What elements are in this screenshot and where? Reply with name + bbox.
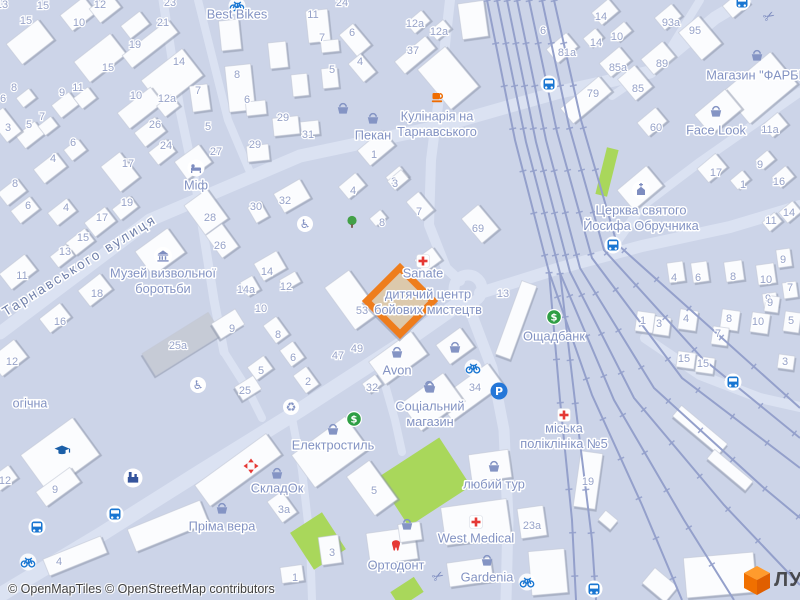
house-number: 21 [157,17,169,29]
house-number: 6 [540,25,546,37]
house-number: 14 [595,11,607,23]
bicycle-icon[interactable] [20,554,37,571]
house-number: 95 [689,25,701,37]
museum-icon[interactable] [154,247,172,265]
poi-label-skladok: СкладОк [251,480,304,495]
house-number: 6 [0,93,6,105]
dollar-icon[interactable]: $ [546,309,562,325]
house-number: 9 [229,323,235,335]
house-number: 1 [292,572,298,584]
house-number: 85a [609,62,628,74]
house-number: 34 [469,382,481,394]
house-number: 10 [255,303,267,315]
poi-label-museum: боротьби [135,281,190,296]
house-number: 12 [94,0,106,11]
house-number: 11 [307,9,318,21]
church-icon[interactable] [632,181,650,199]
poi-label-ortodont: Ортодонт [368,557,425,572]
house-number: 32 [366,382,378,394]
house-number: 4 [683,313,689,325]
attribution-bar: © OpenMapTiles © OpenStreetMap contribut… [8,582,275,596]
house-number: 11 [16,270,27,282]
poi-label-church: Церква святого [596,202,687,217]
house-number: 29 [249,139,261,151]
house-number: 85 [632,83,644,95]
house-number: 8 [234,69,240,81]
house-number: 5 [26,119,32,131]
poi-label-mif: Міф [184,177,208,192]
poi-label-sotsialnyi-mahazyn: магазин [406,414,453,429]
house-number: 5 [371,485,377,497]
house-number: 25a [169,340,188,352]
building [291,73,309,97]
house-number: 18 [91,288,103,300]
bus-icon[interactable] [605,237,622,254]
poi-label-sanate: Sanate [403,265,444,280]
house-number: 10 [130,90,142,102]
dollar-icon[interactable]: $ [346,411,362,427]
poi-label-avon: Avon [383,362,412,377]
house-number: 16 [773,176,785,188]
house-number: 13 [497,288,509,300]
poi-label-mahazyn-farby: Магазин "ФАРБИ [706,67,800,82]
factory-icon[interactable] [124,469,143,488]
house-number: 9 [780,254,786,266]
house-number: 9 [767,297,773,309]
poi-label-sotsialnyi-mahazyn: Соціальний [395,398,464,413]
poi-label-best-bikes: Best Bikes [207,6,267,21]
house-number: 9 [59,87,65,99]
map-canvas[interactable]: P♻♿♿$✂✂Best BikesПеканКулінарія наТарнав… [0,0,800,600]
house-number: 10 [752,316,764,328]
map-svg: P♻♿♿$✂✂Best BikesПеканКулінарія наТарнав… [0,0,800,600]
poi-label-west-medical: West Medical [438,530,515,545]
house-number: 13 [59,246,71,258]
house-number: 19 [582,476,594,488]
svg-text:♻: ♻ [286,400,297,414]
house-number: 14 [173,56,185,68]
house-number: 8 [379,217,385,229]
house-number: 19 [129,39,141,51]
house-number: 15 [37,0,49,12]
house-number: 7 [715,328,721,340]
building [268,41,289,69]
house-number: 93a [662,17,681,29]
building [458,0,489,39]
house-number: 8 [730,271,736,283]
bicycle-icon[interactable] [465,360,482,377]
svg-text:P: P [495,385,503,398]
svg-text:♿: ♿ [300,217,311,231]
house-number: 8 [12,178,18,190]
house-number: 15 [102,62,114,74]
house-number: 12a [430,26,449,38]
house-number: 27 [210,146,222,158]
house-number: 23a [523,520,542,532]
house-number: 25 [239,385,251,397]
poi-label-dytyachyi-tsentr: дитячий центр [385,286,471,301]
coffee-icon[interactable] [432,93,443,102]
house-number: 12a [406,18,425,30]
house-number: 3 [329,547,335,559]
parking-icon[interactable]: P [491,383,508,400]
house-number: 28 [204,212,216,224]
poi-label-church: Йосифа Обручника [583,218,699,233]
bus-icon[interactable] [29,519,46,536]
openmaptiles-link[interactable]: © OpenMapTiles [8,582,102,596]
house-number: 14 [590,37,602,49]
house-number: 15 [678,353,690,365]
house-number: 26 [149,119,161,131]
house-number: 23 [164,0,176,9]
building [218,19,241,51]
house-number: 3 [5,122,11,134]
house-number: 4 [63,202,69,214]
house-number: 7 [416,206,422,218]
house-number: 13 [0,0,8,11]
house-number: 7 [195,85,201,97]
poi-label-museum: Музей визвольної [110,265,216,280]
house-number: 16 [54,316,66,328]
house-number: 6 [25,200,31,212]
poi-label-elektrostyl: Електростиль [292,437,375,452]
house-number: 5 [205,121,211,133]
house-number: 10 [73,17,85,29]
poi-label-oschadbank: Ощадбанк [523,328,585,343]
bus-icon[interactable] [725,374,742,391]
house-number: 31 [302,129,314,141]
house-number: 32 [279,195,291,207]
house-number: 9 [52,484,58,496]
svg-text:$: $ [551,313,558,324]
poi-label-dytyachyi-tsentr: бойових мистецтв [374,302,482,317]
house-number: 11 [765,215,776,227]
house-number: 79 [587,88,599,100]
house-number: 4 [357,56,363,68]
house-number: 4 [50,153,56,165]
poi-label-gardenia: Gardenia [461,569,515,584]
house-number: 53 [356,305,368,317]
svg-text:♿: ♿ [193,378,204,392]
house-number: 12 [0,475,11,487]
house-number: 8 [726,313,732,325]
house-number: 24 [160,140,172,152]
house-number: 89 [656,58,668,70]
house-number: 60 [650,122,662,134]
house-number: 30 [250,201,262,213]
house-number: 15 [20,15,32,27]
cross-icon[interactable] [470,516,483,529]
lun-logo-text: ЛУН [774,569,800,592]
house-number: 12a [158,93,177,105]
house-number: 10 [760,274,772,286]
lun-logo: ЛУН [740,562,800,598]
house-number: 12 [280,281,292,293]
house-number: 47 [332,350,344,362]
bus-icon[interactable] [107,506,124,523]
house-number: 11a [761,124,779,136]
building [528,549,568,596]
osm-link[interactable]: © OpenStreetMap contributors [105,582,275,596]
house-number: 26 [214,240,226,252]
house-number: 37 [407,45,419,57]
poi-label-poliklinika-5: міська [545,420,584,435]
wheelchair-icon[interactable]: ♿ [297,216,313,232]
house-number: 1 [740,179,746,191]
house-number: 14a [237,284,256,296]
house-number: 15 [697,358,709,370]
house-number: 3 [392,178,398,190]
house-number: 1 [371,149,377,161]
house-number: 1 [640,315,646,327]
house-number: 8 [275,329,281,341]
house-number: 49 [351,343,363,355]
house-number: 69 [472,223,484,235]
wheelchair-icon[interactable]: ♿ [190,377,206,393]
house-number: 81a [558,47,577,59]
house-number: 14 [261,266,273,278]
house-number: 17 [122,158,134,170]
house-number: 6 [695,272,701,284]
poi-label-kulinariya: Кулінарія на [401,108,475,123]
house-number: 10 [611,31,623,43]
recycle-icon[interactable]: ♻ [283,399,299,415]
house-number: 8 [11,82,17,94]
bed-icon[interactable] [188,160,205,177]
house-number: 6 [70,137,76,149]
house-number: 19 [121,197,133,209]
house-number: 7 [319,32,325,44]
house-number: 5 [329,64,335,76]
poi-label-lyubyi-tur: любий тур [463,476,525,491]
poi-label-kulinariya: Тарнавського [397,124,477,139]
house-number: 14 [783,207,795,219]
poi-label-poliklinika-5: поліклініка №5 [520,436,607,451]
house-number: 29 [277,112,289,124]
poi-label-prima-vera: Пріма вера [189,518,257,533]
house-number: 17 [710,167,722,179]
house-number: 9 [757,159,763,171]
bus-icon[interactable] [586,581,603,598]
poi-label-face-look: Face Look [686,122,746,137]
svg-text:$: $ [351,415,358,426]
poi-label-pekan: Пекан [355,127,391,142]
house-number: 3a [278,504,291,516]
house-number: 17 [96,212,108,224]
lun-cube-icon [740,562,774,598]
house-number: 5 [258,365,264,377]
house-number: 24 [336,0,348,9]
bicycle-icon[interactable] [519,574,536,591]
house-number: 2 [305,376,311,388]
house-number: 11 [72,82,83,94]
house-number: 4 [671,272,677,284]
house-number: 7 [787,282,793,294]
house-number: 6 [290,352,296,364]
house-number: 3 [656,318,662,330]
house-number: 7 [39,111,45,123]
house-number: 6 [244,94,250,106]
house-number: 15 [77,232,89,244]
partial-poi-label: огічна [13,396,48,410]
bus-icon[interactable] [541,76,558,93]
house-number: 6 [349,27,355,39]
house-number: 4 [56,556,62,568]
house-number: 5 [788,315,794,327]
house-number: 12 [6,356,18,368]
house-number: 3 [782,356,788,368]
house-number: 4 [350,185,356,197]
